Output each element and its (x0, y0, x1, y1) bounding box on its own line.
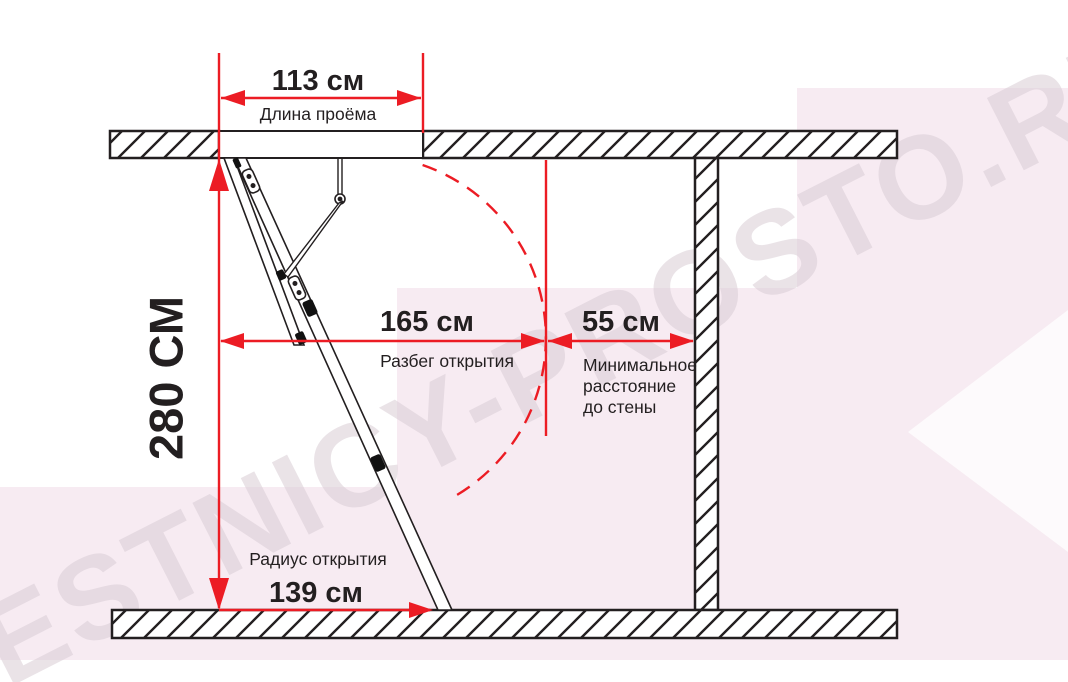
hatch-door-panel (224, 158, 304, 345)
dim-value-radius: 139 см (269, 577, 363, 609)
dim-value-opening: 113 см (272, 65, 364, 97)
dim-value-ceiling-height: 280 СМ (140, 296, 193, 460)
dim-label-run: Разбег открытия (380, 351, 514, 371)
spring-pivot-pin (338, 197, 341, 200)
wall-column (695, 158, 718, 610)
spring-rod (338, 159, 342, 194)
arrowhead-165-left (220, 333, 244, 349)
dim-label-wall-clearance-2: расстояние (583, 376, 676, 396)
ceiling-slab-left (110, 131, 219, 158)
arrowhead-113-right (397, 90, 421, 106)
dim-label-opening: Длина проёма (260, 104, 377, 124)
floor-slab (112, 610, 897, 638)
dim-label-wall-clearance-1: Минимальное (583, 355, 697, 375)
arrowhead-113-left (221, 90, 245, 106)
ceiling-opening-box (219, 131, 423, 158)
folding-arm (284, 201, 343, 277)
dim-value-run: 165 см (380, 306, 474, 338)
dim-label-radius: Радиус открытия (249, 549, 387, 569)
attic-ladder-dimensions-diagram: LESTNICY-PROSTO.RU (0, 0, 1068, 682)
ceiling-slab-right (423, 131, 897, 158)
dim-label-wall-clearance-3: до стены (583, 397, 656, 417)
dim-value-wall-clearance: 55 см (582, 306, 660, 338)
